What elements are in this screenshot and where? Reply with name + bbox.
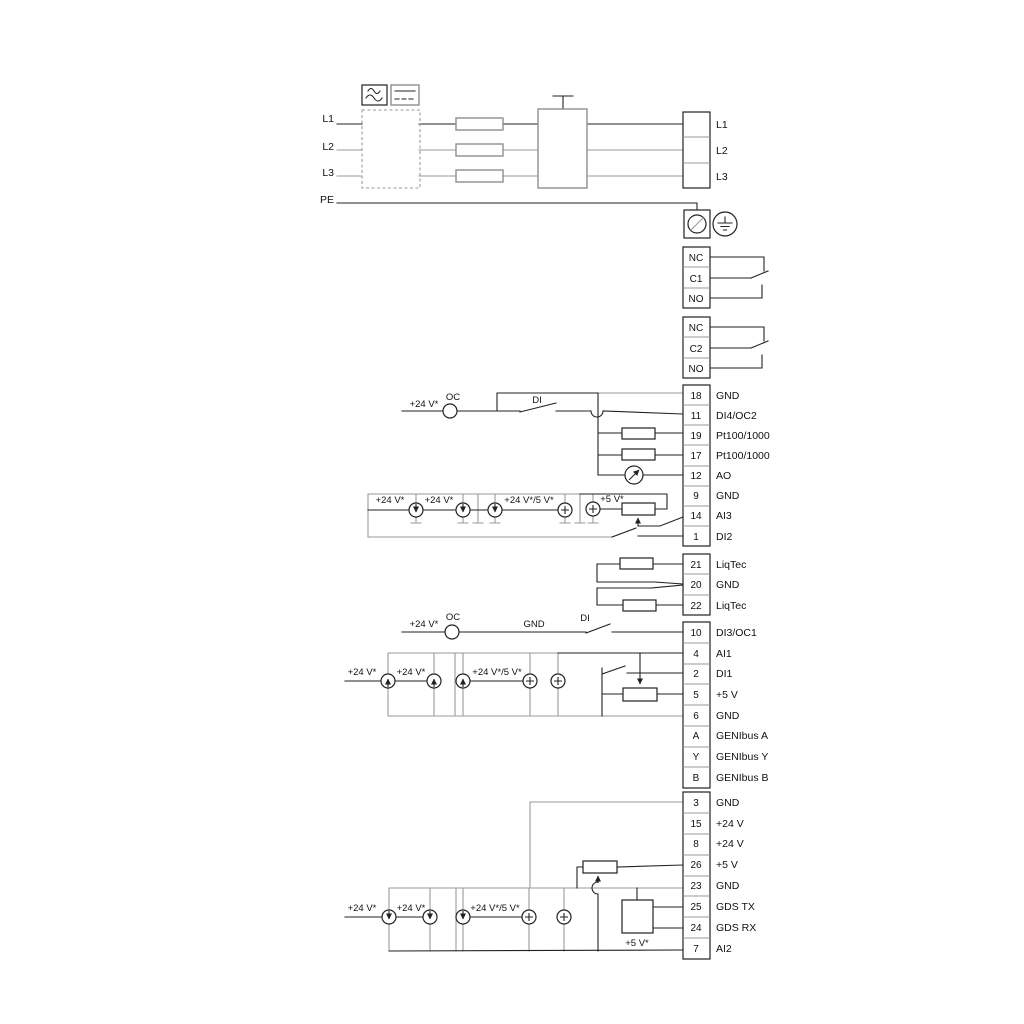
v24-5v-annotation: +24 V*/5 V* bbox=[504, 495, 554, 506]
earth-ground-icon bbox=[713, 212, 737, 236]
wire-segment bbox=[597, 564, 683, 605]
relay1-wiring bbox=[710, 257, 768, 298]
terminal-number: A bbox=[693, 731, 700, 742]
gnd-annotation: GND bbox=[523, 619, 544, 630]
fuse-l2 bbox=[456, 144, 503, 156]
terminal-label: GND bbox=[716, 490, 740, 502]
terminal-number: 25 bbox=[690, 902, 702, 913]
terminal-label: Pt100/1000 bbox=[716, 430, 770, 442]
terminal-label: GND bbox=[716, 797, 740, 809]
terminal-number: 17 bbox=[690, 451, 702, 462]
terminal-number: 22 bbox=[690, 601, 702, 612]
terminal-label: DI2 bbox=[716, 531, 733, 543]
open-collector-icon bbox=[445, 625, 459, 639]
terminal-number: 2 bbox=[693, 669, 699, 680]
di-annotation: DI bbox=[532, 395, 542, 406]
terminal-number: 19 bbox=[690, 431, 702, 442]
mains-in-label: L1 bbox=[322, 113, 334, 125]
terminal-label: AI1 bbox=[716, 648, 732, 660]
terminal-label: LiqTec bbox=[716, 559, 746, 571]
terminal-number: 5 bbox=[693, 690, 699, 701]
wiring-diagram: L1 L2 L3 PE L1 L2 L3 NC C1 NO NC C2 NO bbox=[0, 0, 1024, 1024]
dc-symbol-box bbox=[391, 85, 419, 105]
terminal-number: 18 bbox=[690, 391, 702, 402]
terminal-label: GENIbus B bbox=[716, 772, 769, 784]
v24-5v-annotation: +24 V*/5 V* bbox=[470, 903, 520, 914]
relay1-nc: NC bbox=[689, 253, 703, 264]
mains-out-label: L2 bbox=[716, 145, 728, 157]
terminal-label: GENIbus A bbox=[716, 730, 768, 742]
terminal-label: +24 V bbox=[716, 818, 744, 830]
terminal-label: DI1 bbox=[716, 668, 733, 680]
v24-annotation: +24 V* bbox=[348, 667, 377, 678]
gds-sensor-box bbox=[622, 900, 653, 933]
mains-out-label: L3 bbox=[716, 171, 728, 183]
terminal-number: 3 bbox=[693, 798, 699, 809]
v24-annotation: +24 V* bbox=[397, 903, 426, 914]
liqtec-sensor-2 bbox=[623, 600, 656, 611]
terminal-label: AI2 bbox=[716, 943, 732, 955]
relay2-c2: C2 bbox=[690, 344, 703, 355]
liqtec-sensor-1 bbox=[620, 558, 653, 569]
terminal-label: GDS RX bbox=[716, 922, 756, 934]
oc-annotation: OC bbox=[446, 612, 460, 623]
terminal-number: 24 bbox=[690, 923, 702, 934]
terminal-number: 6 bbox=[693, 711, 699, 722]
upper-io-section: 18 11 19 17 12 9 14 1 GND DI4/OC2 Pt100/… bbox=[368, 385, 770, 546]
oc-annotation: OC bbox=[446, 392, 460, 403]
terminal-number: 23 bbox=[690, 881, 702, 892]
mains-terminal-strip bbox=[683, 112, 710, 188]
v24-annotation: +24 V* bbox=[410, 619, 439, 630]
terminal-label: DI3/OC1 bbox=[716, 627, 757, 639]
wire-segment bbox=[337, 96, 697, 210]
pe-label: PE bbox=[320, 194, 334, 206]
relay1-section: NC C1 NO bbox=[683, 247, 768, 308]
terminal-number: 15 bbox=[690, 819, 702, 830]
v24-annotation: +24 V* bbox=[376, 495, 405, 506]
terminal-number: 26 bbox=[690, 860, 702, 871]
terminal-number: 21 bbox=[690, 560, 702, 571]
terminal-number: 7 bbox=[693, 944, 699, 955]
terminal-label: LiqTec bbox=[716, 600, 746, 612]
potentiometer bbox=[622, 503, 655, 515]
terminal-label: DI4/OC2 bbox=[716, 410, 757, 422]
liqtec-section: 21 20 22 LiqTec GND LiqTec bbox=[597, 554, 746, 615]
terminal-label: AO bbox=[716, 470, 731, 482]
terminal-label: +24 V bbox=[716, 838, 744, 850]
terminal-label: AI3 bbox=[716, 510, 732, 522]
middle-io-section: 10 4 2 5 6 A Y B DI3/OC1 AI1 DI1 +5 V GN… bbox=[345, 612, 769, 788]
relay1-c1: C1 bbox=[690, 274, 703, 285]
fuse-l3 bbox=[456, 170, 503, 182]
terminal-label: GND bbox=[716, 579, 740, 591]
terminal-number: 10 bbox=[690, 628, 702, 639]
mains-out-label: L1 bbox=[716, 119, 728, 131]
terminal-number: 1 bbox=[693, 532, 699, 543]
v5-annotation: +5 V* bbox=[600, 494, 624, 505]
v24-annotation: +24 V* bbox=[348, 903, 377, 914]
v24-annotation: +24 V* bbox=[410, 399, 439, 410]
bottom-io-section: 3 15 8 26 23 25 24 7 GND +24 V +24 V +5 … bbox=[345, 792, 756, 959]
terminal-number: Y bbox=[693, 752, 700, 763]
v24-annotation: +24 V* bbox=[425, 495, 454, 506]
terminal-label: +5 V bbox=[716, 689, 738, 701]
terminal-label: GDS TX bbox=[716, 901, 755, 913]
v24-5v-annotation: +24 V*/5 V* bbox=[472, 667, 522, 678]
terminal-number: 8 bbox=[693, 839, 699, 850]
potentiometer bbox=[623, 688, 657, 701]
filter-dashed-box bbox=[362, 110, 420, 188]
terminal-number: 20 bbox=[690, 580, 702, 591]
terminal-number: 9 bbox=[693, 491, 699, 502]
relay2-section: NC C2 NO bbox=[683, 317, 768, 378]
mains-section: L1 L2 L3 PE L1 L2 L3 bbox=[320, 85, 737, 238]
open-collector-icon bbox=[443, 404, 457, 418]
terminal-number: 14 bbox=[690, 511, 702, 522]
main-switch-box bbox=[538, 109, 587, 188]
relay2-wiring bbox=[710, 327, 768, 368]
potentiometer bbox=[583, 861, 617, 873]
di-annotation: DI bbox=[580, 613, 590, 624]
terminal-number: B bbox=[693, 773, 700, 784]
terminal-label: GENIbus Y bbox=[716, 751, 768, 763]
mains-in-label: L3 bbox=[322, 167, 334, 179]
wire-segment bbox=[337, 109, 683, 186]
ac-symbol-box bbox=[362, 85, 387, 105]
v5-annotation: +5 V* bbox=[625, 938, 649, 949]
terminal-label: +5 V bbox=[716, 859, 738, 871]
terminal-label: GND bbox=[716, 710, 740, 722]
pt100-sensor-1 bbox=[622, 428, 655, 439]
terminal-label: GND bbox=[716, 880, 740, 892]
terminal-number: 4 bbox=[693, 649, 699, 660]
mains-in-label: L2 bbox=[322, 141, 334, 153]
v24-annotation: +24 V* bbox=[397, 667, 426, 678]
relay2-nc: NC bbox=[689, 323, 703, 334]
terminal-number: 11 bbox=[691, 411, 702, 422]
terminal-number: 12 bbox=[690, 471, 702, 482]
fuse-l1 bbox=[456, 118, 503, 130]
pt100-sensor-2 bbox=[622, 449, 655, 460]
relay1-no: NO bbox=[689, 294, 704, 305]
relay2-no: NO bbox=[689, 364, 704, 375]
terminal-label: GND bbox=[716, 390, 740, 402]
terminal-label: Pt100/1000 bbox=[716, 450, 770, 462]
